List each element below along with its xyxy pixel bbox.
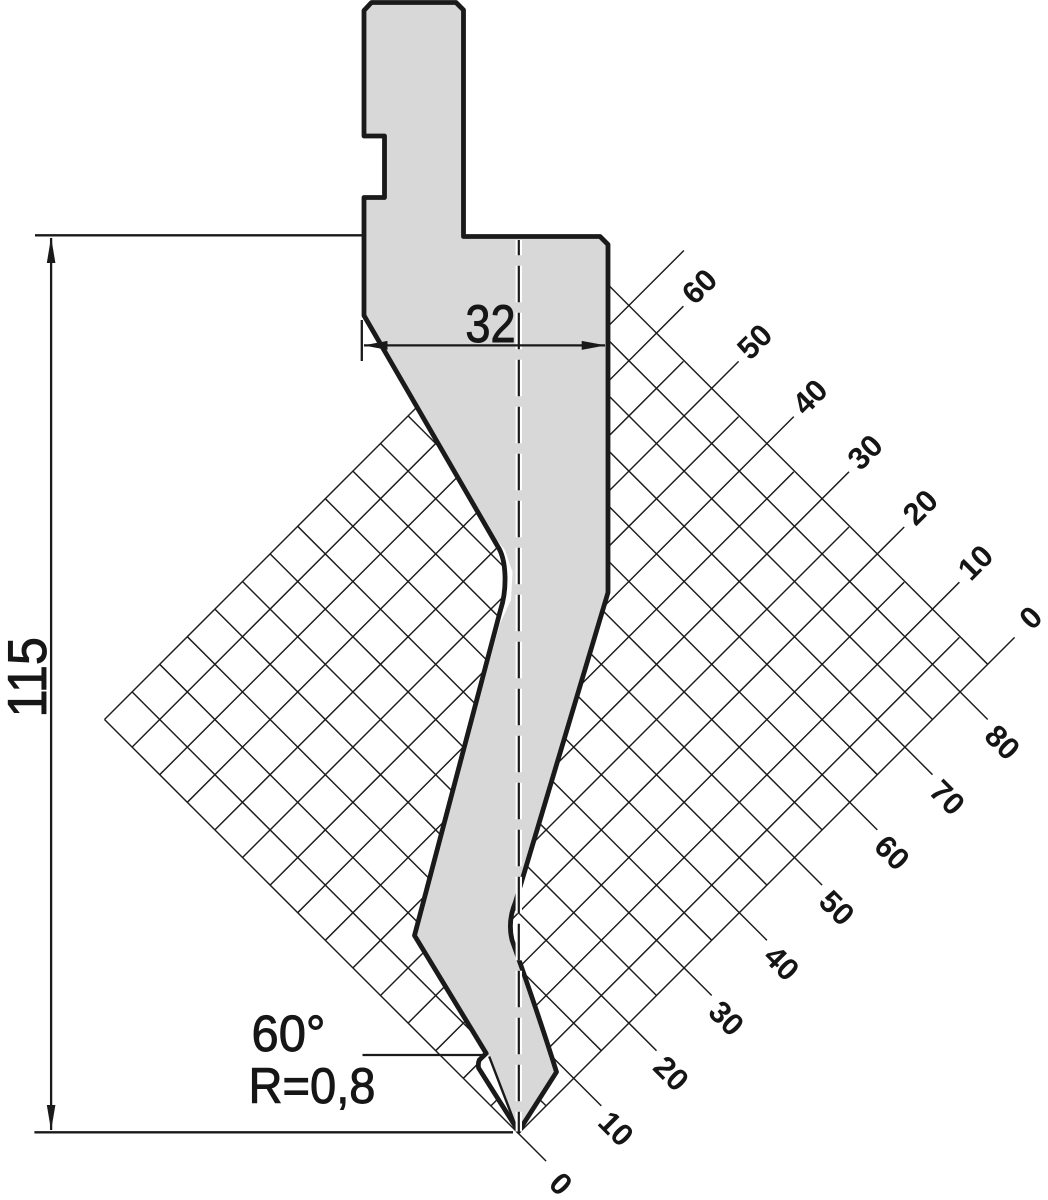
- svg-text:R=0,8: R=0,8: [249, 1057, 376, 1114]
- svg-text:60°: 60°: [252, 1005, 326, 1062]
- svg-text:115: 115: [0, 637, 58, 718]
- svg-text:32: 32: [465, 295, 515, 354]
